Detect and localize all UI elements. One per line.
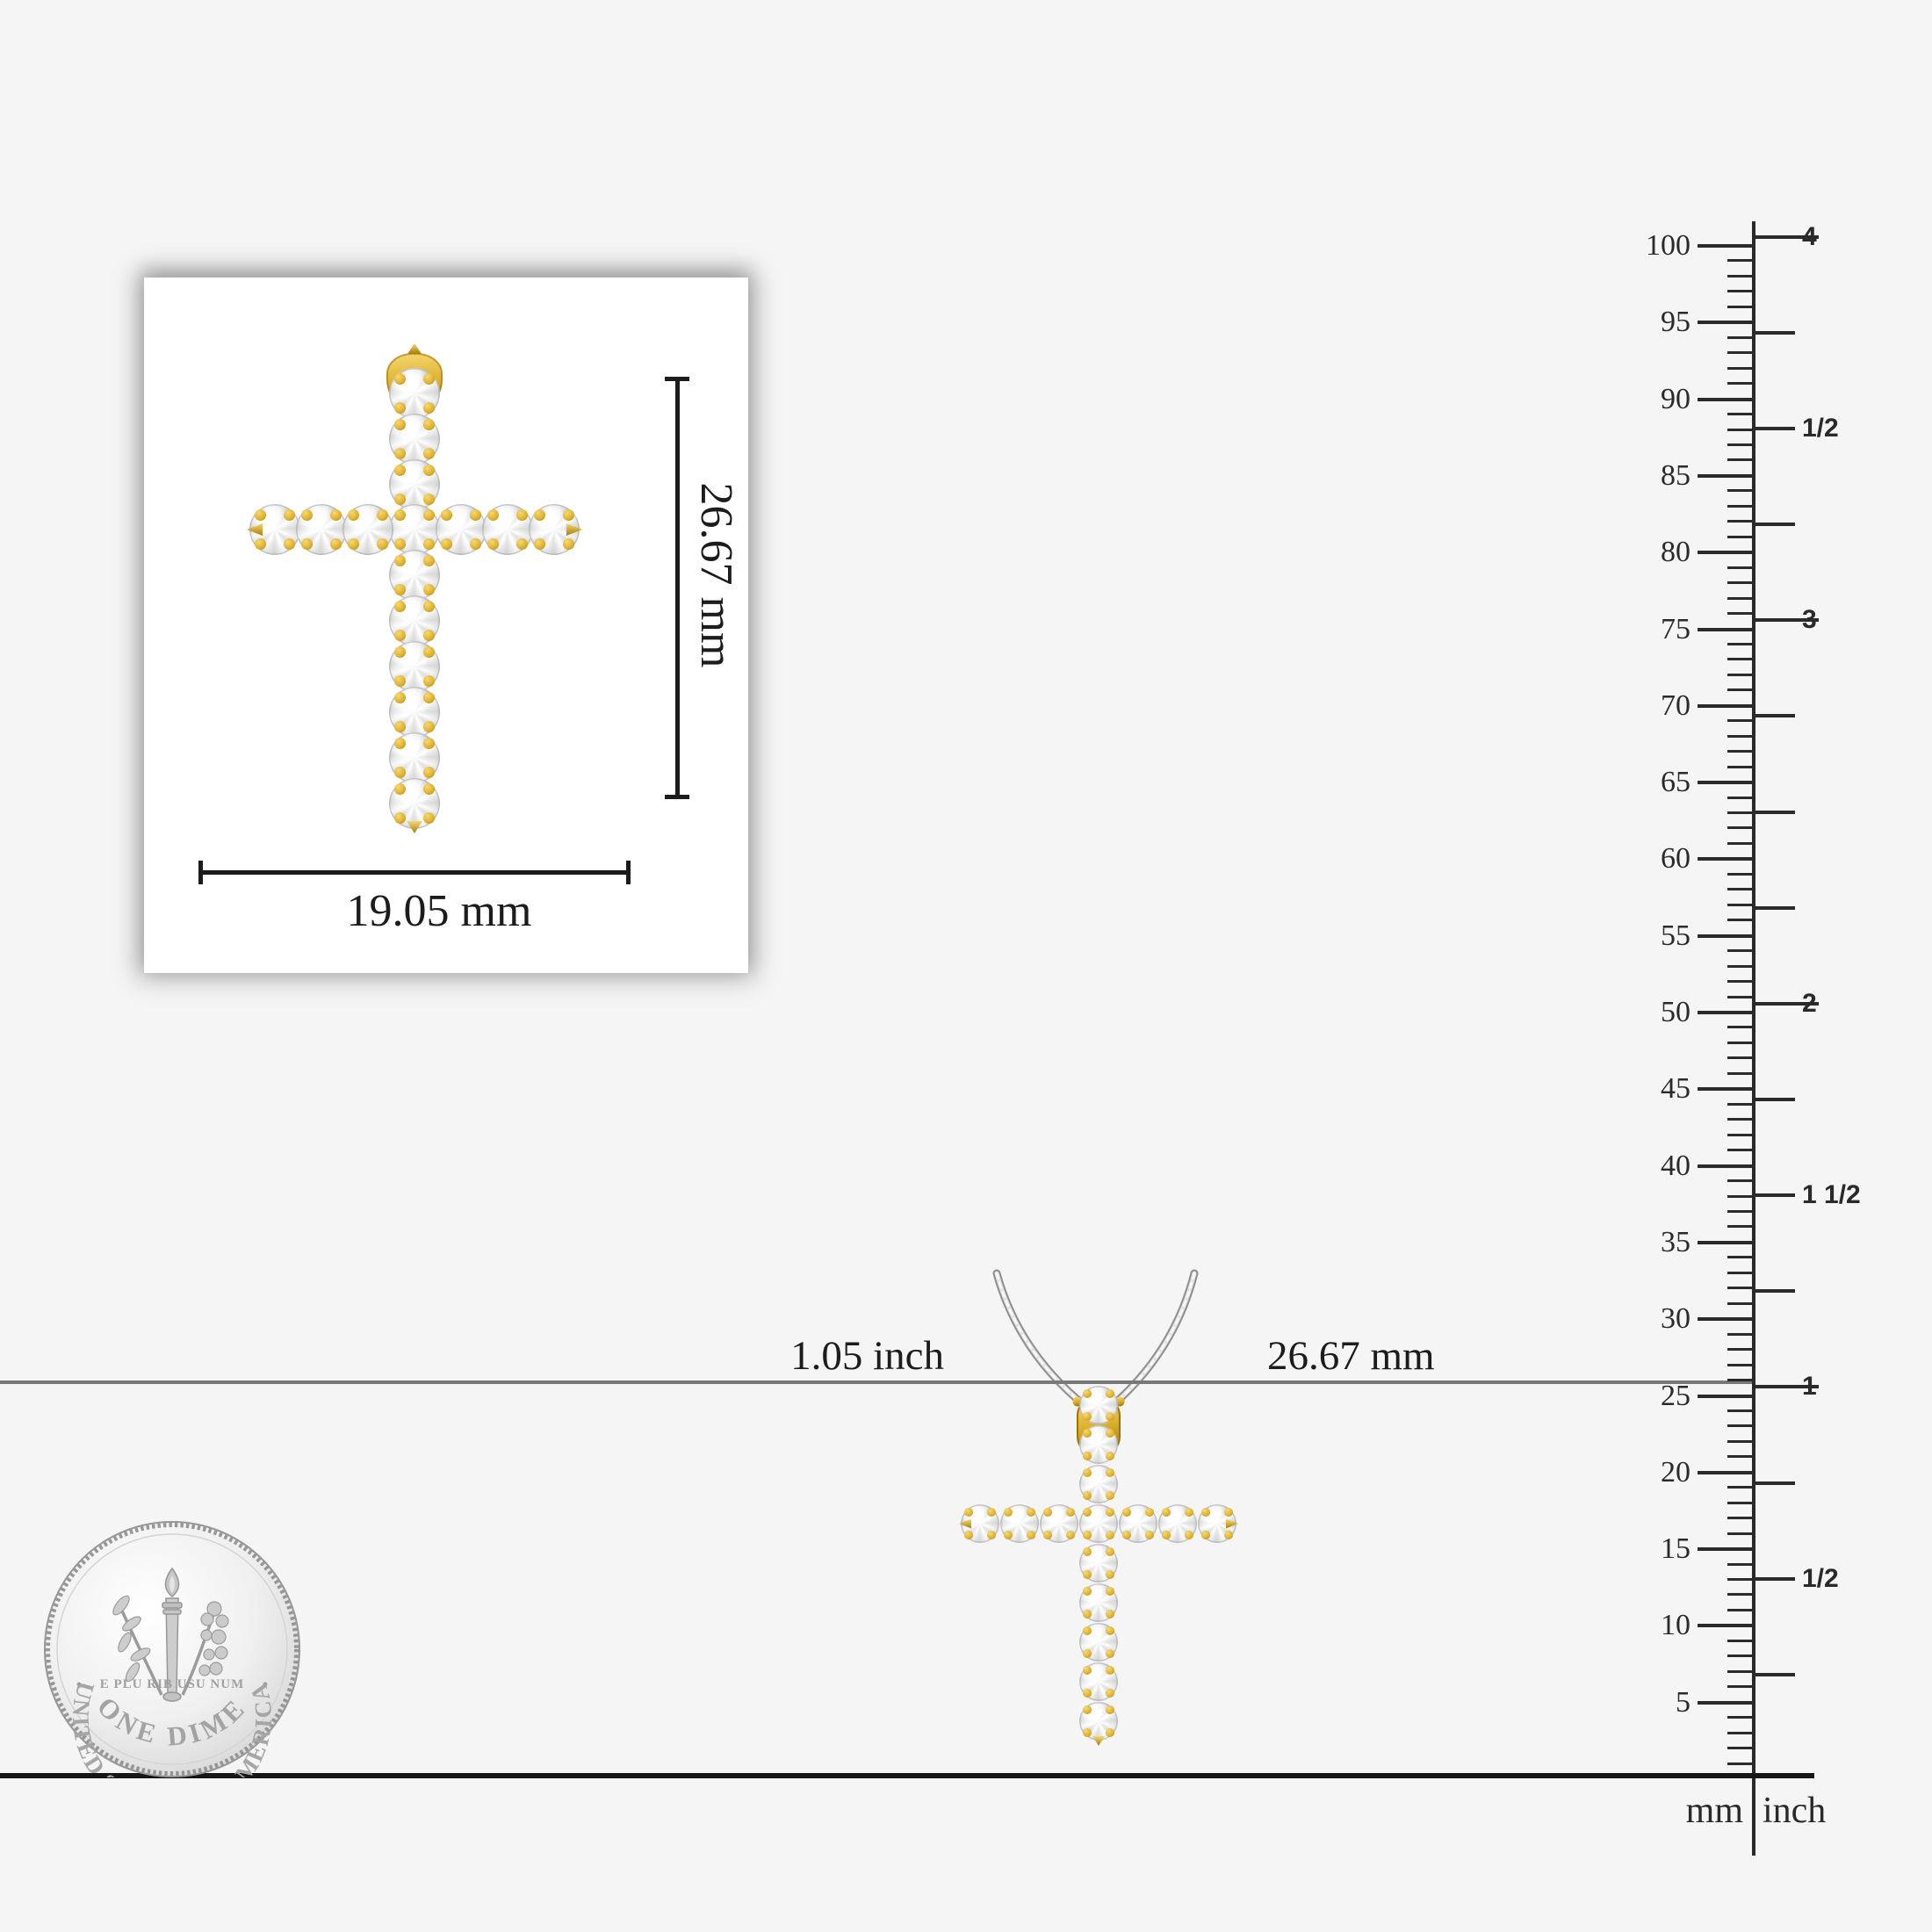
ruler-mm-tick [1727, 382, 1752, 385]
ruler-mm-tick [1727, 1532, 1752, 1535]
diamond-stone [1079, 1504, 1118, 1543]
gold-prong [423, 555, 435, 566]
gold-prong [1106, 1689, 1114, 1698]
gold-prong [284, 509, 295, 521]
gold-prong [1083, 1412, 1092, 1421]
ruler-inch-label: 4 [1802, 220, 1932, 255]
ruler-mm-tick [1727, 1424, 1752, 1427]
gold-prong [1106, 1452, 1114, 1460]
ruler-mm-tick [1727, 458, 1752, 461]
gold-prong [394, 584, 406, 595]
gold-prong [1106, 1610, 1114, 1618]
ruler-mm-label: 10 [1515, 1608, 1690, 1643]
width-dimension-line [200, 870, 631, 875]
scale-mm-label: 26.67 mm [1267, 1332, 1531, 1380]
ruler-mm-tick [1727, 259, 1752, 262]
gold-prong [516, 509, 528, 521]
ruler-mm-tick [1727, 674, 1752, 676]
ruler-mm-tick [1727, 1026, 1752, 1028]
ruler-mm-tick [1727, 719, 1752, 722]
ruler-mm-tick [1727, 1640, 1752, 1642]
gold-prong [394, 465, 406, 476]
scale-inch-label: 1.05 inch [681, 1332, 944, 1380]
ruler-mm-tick [1727, 797, 1752, 799]
gold-prong [1106, 1508, 1114, 1517]
diamond-stone [389, 414, 440, 465]
gold-prong [394, 812, 406, 824]
ruler-mm-tick [1727, 1072, 1752, 1075]
gold-prong [1106, 1429, 1114, 1438]
gold-prong [394, 538, 406, 550]
ruler-mm-label: 65 [1515, 765, 1690, 800]
ruler-mm-label: 80 [1515, 535, 1690, 570]
gold-prong [1162, 1531, 1171, 1539]
diamond-stone [436, 504, 487, 555]
gold-prong [423, 646, 435, 658]
gold-prong [394, 675, 406, 687]
ruler-mm-label: 25 [1515, 1379, 1690, 1414]
gold-prong [1224, 1508, 1233, 1517]
ruler-mm-label: 40 [1515, 1149, 1690, 1184]
gold-prong [394, 630, 406, 641]
ruler-inch-label: 2 [1802, 986, 1932, 1021]
ruler-mm-tick [1727, 873, 1752, 876]
gold-prong [487, 538, 499, 550]
gold-prong [1106, 1531, 1114, 1539]
ruler-mm-tick [1727, 1256, 1752, 1258]
ruler-mm-tick [1727, 275, 1752, 278]
diamond-stone [1079, 1583, 1118, 1622]
ruler-mm-tick [1727, 1409, 1752, 1412]
gold-prong [1106, 1705, 1114, 1714]
gold-prong [423, 738, 435, 749]
gold-prong [394, 721, 406, 732]
gold-prong [1185, 1531, 1193, 1539]
gold-prong [394, 646, 406, 658]
ruler-mm-label: 20 [1515, 1455, 1690, 1490]
diamond-stone [296, 504, 347, 555]
ruler-mm-tick [1727, 949, 1752, 952]
gold-prong [1224, 1531, 1233, 1539]
gold-prong [1106, 1547, 1114, 1556]
gold-prong [1083, 1610, 1092, 1618]
gold-prong [394, 692, 406, 703]
ruler-mm-tick [1698, 934, 1752, 938]
ruler-mm-tick [1727, 1763, 1752, 1765]
gold-prong [255, 509, 266, 521]
ruler-mm-tick [1727, 1563, 1752, 1566]
ruler-inch-tick [1755, 906, 1795, 910]
ruler-mm-tick [1727, 1747, 1752, 1749]
ruler-mm-tick [1727, 1517, 1752, 1519]
ruler-mm-tick [1727, 965, 1752, 968]
ruler-mm-tick [1727, 1379, 1752, 1381]
ruler-inch-tick [1755, 1673, 1795, 1676]
ruler-unit-mm: mm [1568, 1788, 1743, 1834]
gold-prong [1083, 1468, 1092, 1477]
gold-prong [348, 538, 359, 550]
ruler-mm-label: 50 [1515, 995, 1690, 1030]
gold-prong [534, 538, 545, 550]
chain-strand-left [997, 1273, 1086, 1407]
ruler-mm-tick [1698, 1317, 1752, 1321]
ruler-mm-tick [1727, 612, 1752, 615]
diamond-stone [389, 459, 440, 510]
ruler-inch-tick [1755, 331, 1795, 335]
ruler-mm-tick [1727, 367, 1752, 370]
gold-prong [487, 509, 499, 521]
ruler-mm-tick [1727, 826, 1752, 829]
ruler-inch-tick [1755, 1098, 1795, 1101]
ruler-unit-inch: inch [1763, 1788, 1921, 1834]
ruler-mm-tick [1727, 1179, 1752, 1182]
gold-prong [394, 783, 406, 795]
gold-prong [1083, 1626, 1092, 1635]
gold-prong [1083, 1452, 1092, 1460]
gold-prong [394, 767, 406, 778]
ruler-mm-tick [1727, 536, 1752, 538]
gold-prong [1083, 1728, 1092, 1737]
height-dimension-line [675, 379, 680, 797]
ruler-mm-tick [1727, 811, 1752, 814]
ruler-mm-tick [1727, 1210, 1752, 1213]
ruler-mm-tick [1727, 581, 1752, 584]
gold-prong [1027, 1531, 1035, 1539]
gold-prong [423, 465, 435, 476]
ruler-mm-tick [1727, 520, 1752, 523]
ruler-mm-tick [1727, 1486, 1752, 1489]
gold-prong [1043, 1508, 1052, 1517]
gold-prong [964, 1508, 973, 1517]
gold-prong [423, 783, 435, 795]
ruler-mm-label: 60 [1515, 841, 1690, 876]
ruler-mm-tick [1698, 1624, 1752, 1627]
ruler-mm-tick [1727, 750, 1752, 753]
gold-prong [1083, 1666, 1092, 1675]
gold-prong [1162, 1508, 1171, 1517]
chain-strand-right [1111, 1273, 1194, 1407]
gold-prong [1004, 1531, 1013, 1539]
ruler-inch-tick [1755, 523, 1795, 526]
gold-prong [1083, 1705, 1092, 1714]
diamond-stone [1079, 1386, 1118, 1424]
ruler-mm-label: 90 [1515, 382, 1690, 417]
diamond-stone [1040, 1504, 1078, 1543]
diamond-stone [389, 550, 440, 601]
ruler-mm-tick [1727, 1670, 1752, 1673]
ruler-mm-tick [1727, 904, 1752, 906]
pendant-card [144, 278, 748, 973]
ruler-inch-label: 1/2 [1802, 411, 1932, 446]
diamond-stone [342, 504, 393, 555]
ruler-mm-tick [1727, 1455, 1752, 1458]
ruler-mm-tick [1727, 658, 1752, 660]
ruler-mm-tick [1698, 321, 1752, 324]
gold-prong [394, 419, 406, 430]
diamond-stone [1000, 1504, 1039, 1543]
ruler-mm-tick [1727, 306, 1752, 308]
ruler-mm-tick [1698, 704, 1752, 708]
gold-prong [1106, 1728, 1114, 1737]
gold-prong [1083, 1429, 1092, 1438]
gold-prong [394, 738, 406, 749]
ruler-mm-tick [1727, 996, 1752, 998]
ruler-mm-tick [1698, 1011, 1752, 1014]
gold-prong [423, 692, 435, 703]
gold-prong [1066, 1531, 1075, 1539]
ruler-mm-tick [1698, 1164, 1752, 1168]
gold-prong [1201, 1531, 1210, 1539]
ruler-mm-tick [1727, 1272, 1752, 1274]
ruler-inch-label: 1/2 [1802, 1561, 1932, 1597]
gold-prong [470, 509, 481, 521]
ruler-mm-label: 30 [1515, 1301, 1690, 1337]
gold-prong [1106, 1570, 1114, 1579]
ruler-mm-tick [1727, 1654, 1752, 1657]
ruler-mm-tick [1727, 1593, 1752, 1596]
ruler-mm-label: 15 [1515, 1532, 1690, 1567]
cross-arm-tip [1092, 1736, 1105, 1746]
gold-prong [987, 1508, 996, 1517]
gold-prong [1106, 1412, 1114, 1421]
ruler-mm-label: 45 [1515, 1071, 1690, 1107]
diamond-stone [1079, 1662, 1118, 1701]
gold-prong [1083, 1531, 1092, 1539]
ruler-mm-tick [1698, 1471, 1752, 1474]
ruler-mm-tick [1698, 551, 1752, 554]
scale-reference-line [0, 1381, 1752, 1384]
ruler-mm-label: 85 [1515, 458, 1690, 494]
gold-prong [1004, 1508, 1013, 1517]
ruler-mm-tick [1727, 413, 1752, 415]
gold-prong [423, 601, 435, 612]
gold-prong [964, 1531, 973, 1539]
ruler-mm-tick [1727, 505, 1752, 508]
ruler-mm-tick [1727, 1302, 1752, 1305]
diamond-stone [1079, 1425, 1118, 1464]
ruler-inch-tick [1755, 714, 1795, 717]
ruler-mm-tick [1727, 1118, 1752, 1121]
ruler-inch-label: 1 [1802, 1369, 1932, 1404]
ruler-mm-label: 70 [1515, 688, 1690, 724]
gold-prong [394, 448, 406, 459]
ruler-mm-tick [1727, 443, 1752, 446]
gold-prong [394, 601, 406, 612]
gold-prong [441, 538, 452, 550]
ruler-mm-tick [1727, 1149, 1752, 1151]
ruler-mm-tick [1698, 244, 1752, 248]
diamond-stone [389, 732, 440, 783]
ruler-mm-tick [1727, 1225, 1752, 1228]
ruler-mm-tick [1727, 980, 1752, 983]
ruler-mm-tick [1727, 489, 1752, 492]
ruler-mm-tick [1727, 1134, 1752, 1136]
gold-prong [1185, 1508, 1193, 1517]
gold-prong [1145, 1531, 1154, 1539]
gold-prong [1083, 1570, 1092, 1579]
gold-prong [1083, 1491, 1092, 1500]
gold-prong [394, 373, 406, 385]
gold-prong [1083, 1389, 1092, 1398]
ruler-inch-tick [1755, 427, 1795, 430]
gold-prong [1106, 1389, 1114, 1398]
ruler-mm-tick [1727, 735, 1752, 738]
gold-prong [1106, 1626, 1114, 1635]
ruler-mm-tick [1727, 1609, 1752, 1611]
ruler-mm-tick [1727, 336, 1752, 339]
diamond-stone [1119, 1504, 1157, 1543]
gold-prong [1106, 1468, 1114, 1477]
ruler-mm-tick [1727, 1716, 1752, 1719]
ruler-mm-tick [1727, 1502, 1752, 1504]
ruler-mm-tick [1727, 643, 1752, 645]
ruler-mm-tick [1727, 766, 1752, 768]
ruler-mm-label: 75 [1515, 612, 1690, 647]
ruler-mm-tick [1727, 429, 1752, 431]
ruler-mm-tick [1727, 1364, 1752, 1366]
ruler-mm-tick [1727, 1440, 1752, 1443]
gold-prong [1027, 1508, 1035, 1517]
diamond-stone [482, 504, 533, 555]
gold-prong [394, 555, 406, 566]
gold-prong [1083, 1587, 1092, 1596]
ruler-inch-tick [1755, 1481, 1795, 1485]
ruler-mm-tick [1727, 1333, 1752, 1336]
ruler-inch-tick [1755, 811, 1795, 814]
gold-prong [1066, 1508, 1075, 1517]
ruler-inch-tick [1755, 1577, 1795, 1581]
gold-prong [1083, 1649, 1092, 1658]
ruler-mm-tick [1727, 566, 1752, 569]
gold-prong [987, 1531, 996, 1539]
diamond-stone [389, 595, 440, 646]
ruler-mm-tick [1698, 1701, 1752, 1705]
ruler-mm-tick [1698, 1241, 1752, 1244]
gold-prong [1122, 1531, 1131, 1539]
gold-prong [330, 509, 342, 521]
gold-prong [348, 509, 359, 521]
gold-prong [255, 538, 266, 550]
gold-prong [1106, 1666, 1114, 1675]
dime-coin: UNITED STATES OF AMERICA ONE DIME [44, 1521, 300, 1777]
ruler-mm-tick [1698, 1087, 1752, 1091]
ruler-mm-tick [1727, 290, 1752, 292]
diamond-stone [1079, 1623, 1118, 1662]
gold-prong [423, 373, 435, 385]
height-dimension-cap-bottom [665, 795, 689, 799]
ruler-mm-tick [1727, 1732, 1752, 1734]
ruler-mm-label: 95 [1515, 305, 1690, 340]
ruler-mm-tick [1698, 628, 1752, 631]
ruler-mm-tick [1727, 1195, 1752, 1198]
gold-prong [1043, 1531, 1052, 1539]
ruler-inch-tick [1755, 1193, 1795, 1197]
ruler-mm-tick [1727, 888, 1752, 890]
ruler-mm-tick [1727, 1578, 1752, 1581]
diamond-stone [1079, 1702, 1118, 1741]
ruler-mm-tick [1727, 351, 1752, 354]
gold-prong [1145, 1508, 1154, 1517]
ruler-mm-tick [1727, 597, 1752, 600]
gold-prong [301, 538, 313, 550]
jewelry-dimension-diagram: 26.67 mm 19.05 mm [0, 0, 1932, 1932]
ruler-mm-tick [1698, 474, 1752, 478]
ruler-inch-label: 3 [1802, 602, 1932, 638]
gold-prong [1122, 1508, 1131, 1517]
diamond-stone [1079, 1465, 1118, 1503]
height-dimension-label: 26.67 mm [693, 435, 739, 716]
ruler-mm-tick [1727, 688, 1752, 691]
ruler-mm-tick [1698, 398, 1752, 401]
ruler-mm-tick [1698, 781, 1752, 784]
ruler-mm-label: 55 [1515, 919, 1690, 954]
ruler-mm-tick [1727, 1103, 1752, 1106]
ruler-mm-tick [1727, 842, 1752, 845]
ruler-inch-tick [1755, 1289, 1795, 1293]
ruler-mm-tick [1727, 1685, 1752, 1688]
ruler-mm-tick [1698, 1395, 1752, 1398]
coin-motto-dot-left [77, 1683, 82, 1687]
ruler-mm-tick [1727, 1042, 1752, 1044]
gold-prong [441, 509, 452, 521]
coin-motto-dot-right [263, 1683, 268, 1687]
ruler-mm-tick [1727, 1287, 1752, 1289]
ruler-mm-tick [1727, 1348, 1752, 1351]
gold-prong [394, 494, 406, 505]
ruler-mm-tick [1727, 919, 1752, 921]
ruler-vertical-line [1752, 221, 1755, 1856]
ruler-mm-tick [1698, 857, 1752, 861]
diamond-stone [1158, 1504, 1197, 1543]
diamond-stone [389, 641, 440, 692]
ruler-mm-label: 5 [1515, 1685, 1690, 1720]
gold-prong [377, 509, 388, 521]
gold-prong [394, 402, 406, 414]
gold-prong [1106, 1649, 1114, 1658]
width-dimension-label: 19.05 mm [307, 885, 571, 937]
gold-prong [394, 509, 406, 521]
gold-prong [1083, 1508, 1092, 1517]
gold-prong [1106, 1587, 1114, 1596]
diamond-stone [389, 687, 440, 738]
coin-middle-text: E PLU RIB USU NUM [100, 1677, 245, 1691]
diamond-stone [1079, 1544, 1118, 1582]
diamond-stone [389, 368, 440, 419]
ruler-mm-label: 35 [1515, 1225, 1690, 1260]
width-dimension-cap-right [626, 861, 631, 884]
gold-prong [534, 509, 545, 521]
gold-prong [301, 509, 313, 521]
gold-prong [423, 419, 435, 430]
gold-prong [1083, 1547, 1092, 1556]
ruler-mm-tick [1727, 1056, 1752, 1059]
ruler-mm-label: 100 [1515, 228, 1690, 263]
gold-prong [563, 509, 574, 521]
ruler-inch-label: 1 1/2 [1802, 1178, 1932, 1213]
gold-prong [1083, 1689, 1092, 1698]
gold-prong [423, 509, 435, 521]
gold-prong [1106, 1491, 1114, 1500]
ruler-mm-tick [1698, 1547, 1752, 1551]
diamond-stone [389, 504, 440, 555]
gold-prong [1201, 1508, 1210, 1517]
